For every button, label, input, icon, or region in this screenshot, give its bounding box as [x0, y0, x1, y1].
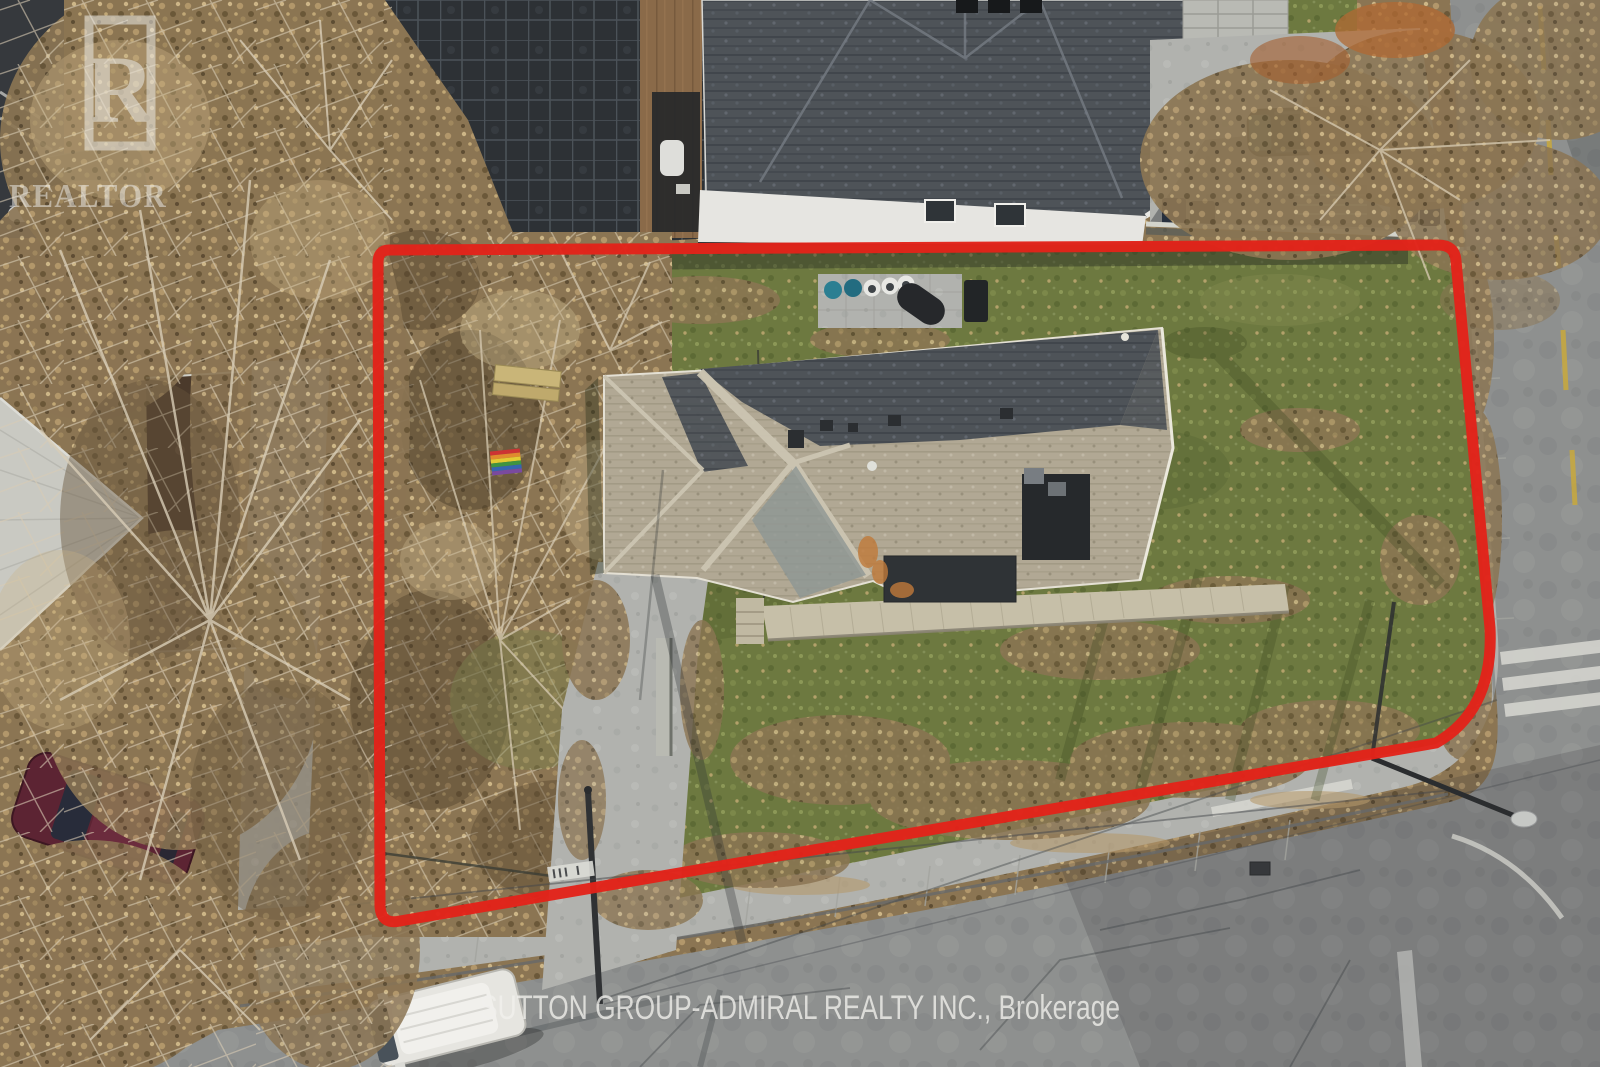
streetlight-lamp: [1511, 811, 1537, 827]
patio-chair-teal: [824, 281, 842, 299]
left-neighborhood: [0, 0, 420, 1067]
yard-wall: [656, 638, 671, 756]
aerial-photo-canvas: R REALTOR SUTTON GROUP-ADMIRAL REALTY IN…: [0, 0, 1600, 1067]
realtor-logo-label: REALTOR: [9, 178, 167, 215]
front-steps: [736, 598, 764, 644]
aerial-photo: R REALTOR SUTTON GROUP-ADMIRAL REALTY IN…: [0, 0, 1600, 1067]
deck-chair: [660, 140, 684, 176]
patio-bin: [964, 280, 988, 322]
pride-flag: [490, 448, 522, 475]
garden-shed: [493, 365, 562, 402]
crosswalk-bars: [1500, 639, 1600, 717]
realtor-logo-letter: R: [85, 36, 156, 143]
dormer-window: [995, 204, 1025, 226]
roof-vent-white: [1121, 333, 1129, 341]
dormer-window: [925, 200, 955, 222]
brokerage-watermark: SUTTON GROUP-ADMIRAL REALTY INC., Broker…: [480, 989, 1120, 1027]
roof-vent-white: [867, 461, 877, 471]
chimney-shadow: [1022, 468, 1090, 560]
deck-table: [676, 184, 690, 194]
tree-canopy-left: [0, 0, 420, 1067]
patio-chair-teal: [844, 279, 862, 297]
utility-pole-top: [584, 786, 592, 794]
